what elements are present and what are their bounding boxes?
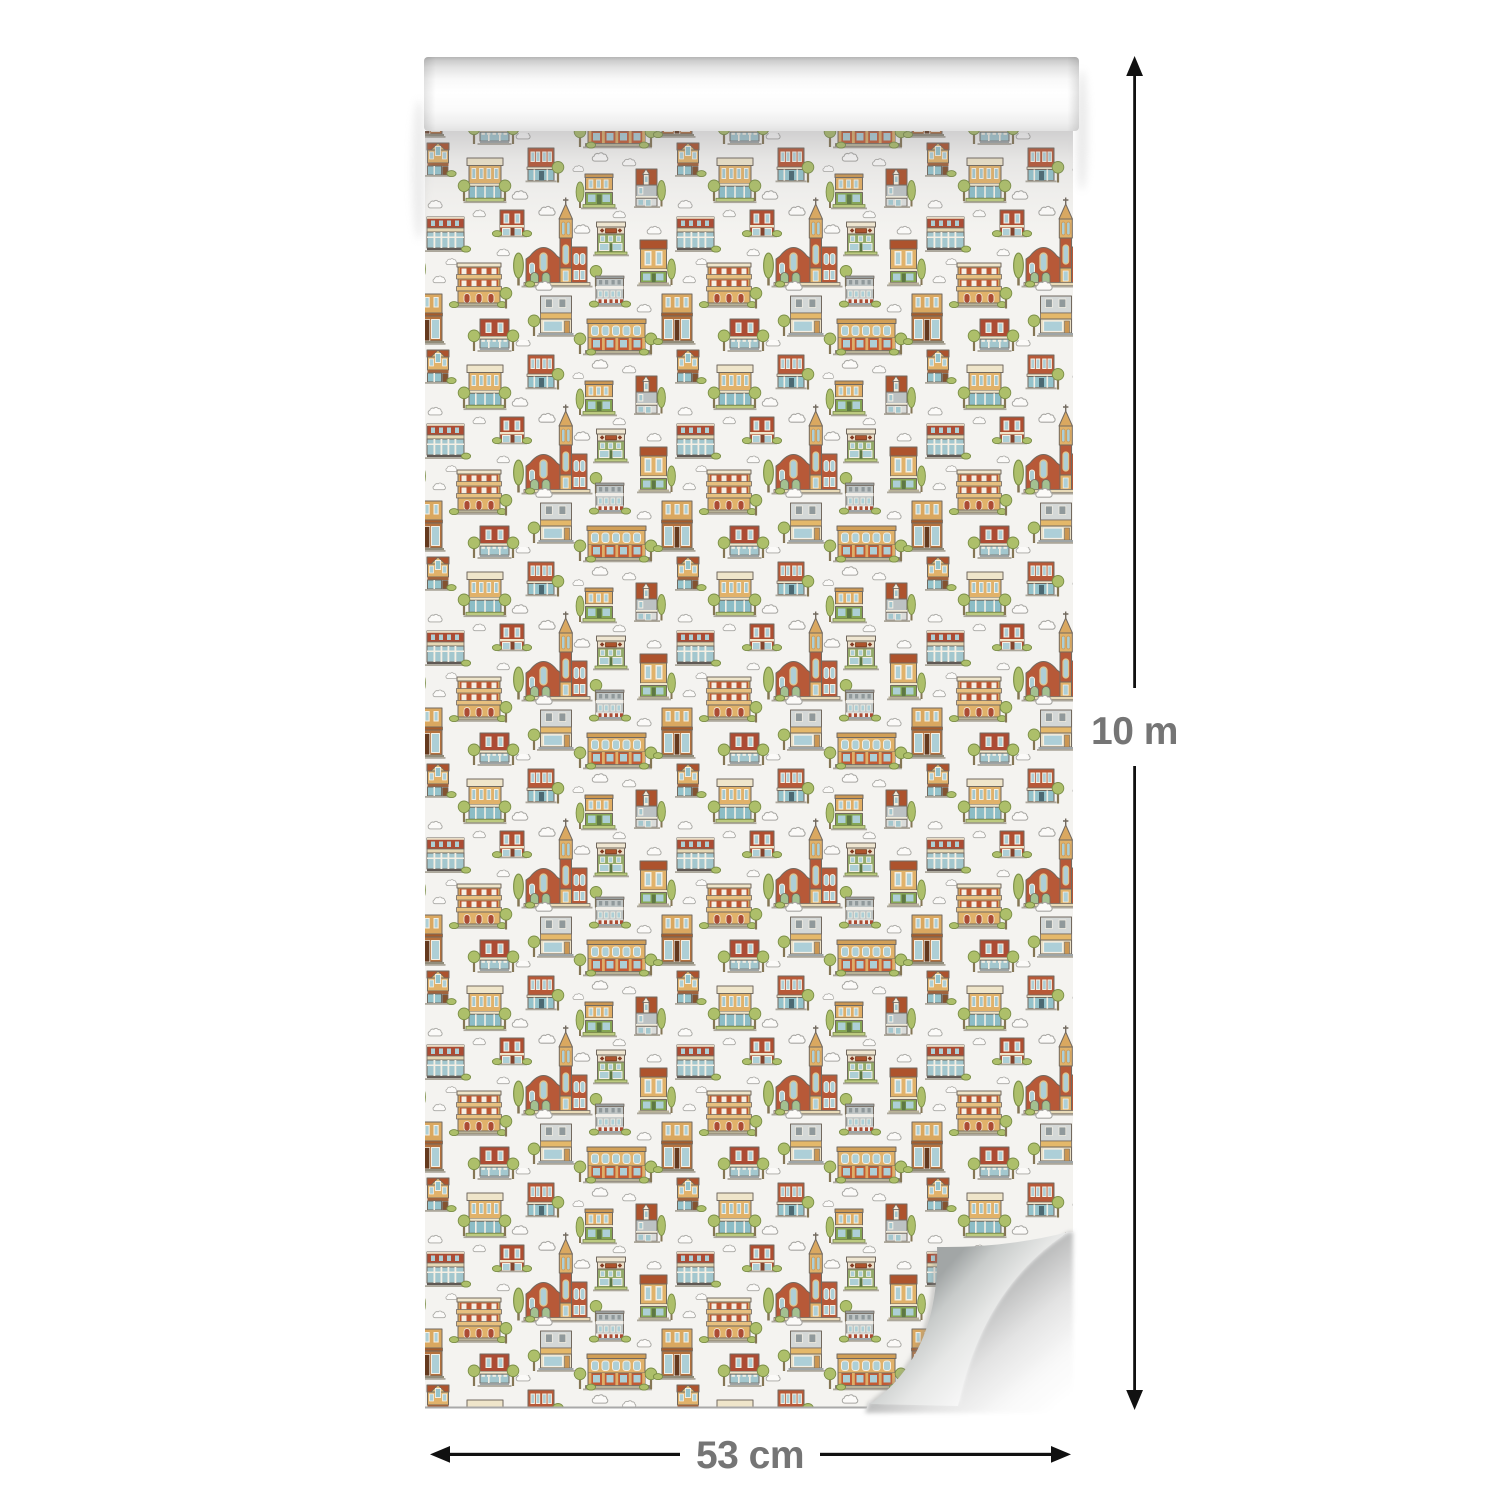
svg-text:53 cm: 53 cm — [696, 1434, 804, 1477]
svg-text:10 m: 10 m — [1091, 710, 1178, 753]
